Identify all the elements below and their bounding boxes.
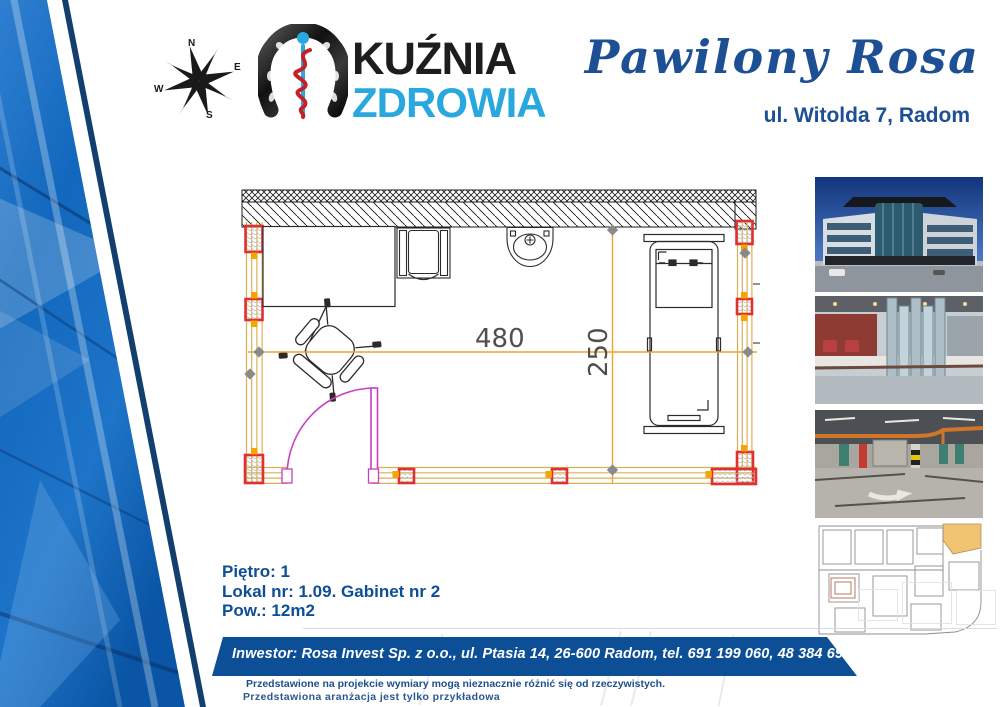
investor-info: Inwestor: Rosa Invest Sp. z o.o., ul. Pt… [232,646,863,662]
unit-area: Pow.: 12m2 [222,601,440,621]
sink [507,228,553,267]
brand-name-bottom: ZDROWIA [352,82,546,124]
compass-n-label: N [188,38,195,49]
disclaimer-arrangement: Przedstawiona aranżacja jest tylko przyk… [243,691,500,703]
unit-details: Piętro: 1 Lokal nr: 1.09. Gabinet nr 2 P… [222,562,440,621]
compass-w-label: W [154,84,164,95]
offer-sheet: N E S W KUŹNIA ZDROWIA Pawilony Rosa ul.… [0,0,1000,707]
compass-e-label: E [234,62,241,73]
ghost-plan-mark [858,589,898,621]
door [282,388,379,483]
atrium-interior-photo [815,296,983,404]
exam-bed [644,235,724,434]
project-name: Pawilony Rosa [560,30,992,84]
desk [263,227,395,307]
bottom-wall [246,468,756,484]
floor-plan: 480 250 [235,180,770,502]
building-exterior-photo [815,177,983,292]
unit-number: Lokal nr: 1.09. Gabinet nr 2 [222,582,440,602]
disclaimer-dimensions: Przedstawione na projekcie wymiary mogą … [246,678,665,690]
dimension-width-label: 480 [475,324,525,354]
brand-name-top: KUŹNIA [352,36,516,81]
unit-floor: Piętro: 1 [222,562,440,582]
divider-line [303,628,997,629]
underground-parking-photo [815,410,983,518]
right-wall [738,222,752,468]
compass-rose-icon: N E S W [152,32,244,120]
project-address: ul. Witolda 7, Radom [560,104,970,128]
top-wall [242,190,756,229]
ghost-plan-mark [902,582,952,624]
horseshoe-asclepius-icon [258,24,348,128]
compass-s-label: S [206,110,213,120]
investor-ribbon: Inwestor: Rosa Invest Sp. z o.o., ul. Pt… [205,635,865,677]
ghost-plan-mark [956,590,996,625]
dimension-height-label: 250 [584,327,614,377]
desk-chair [397,228,450,280]
